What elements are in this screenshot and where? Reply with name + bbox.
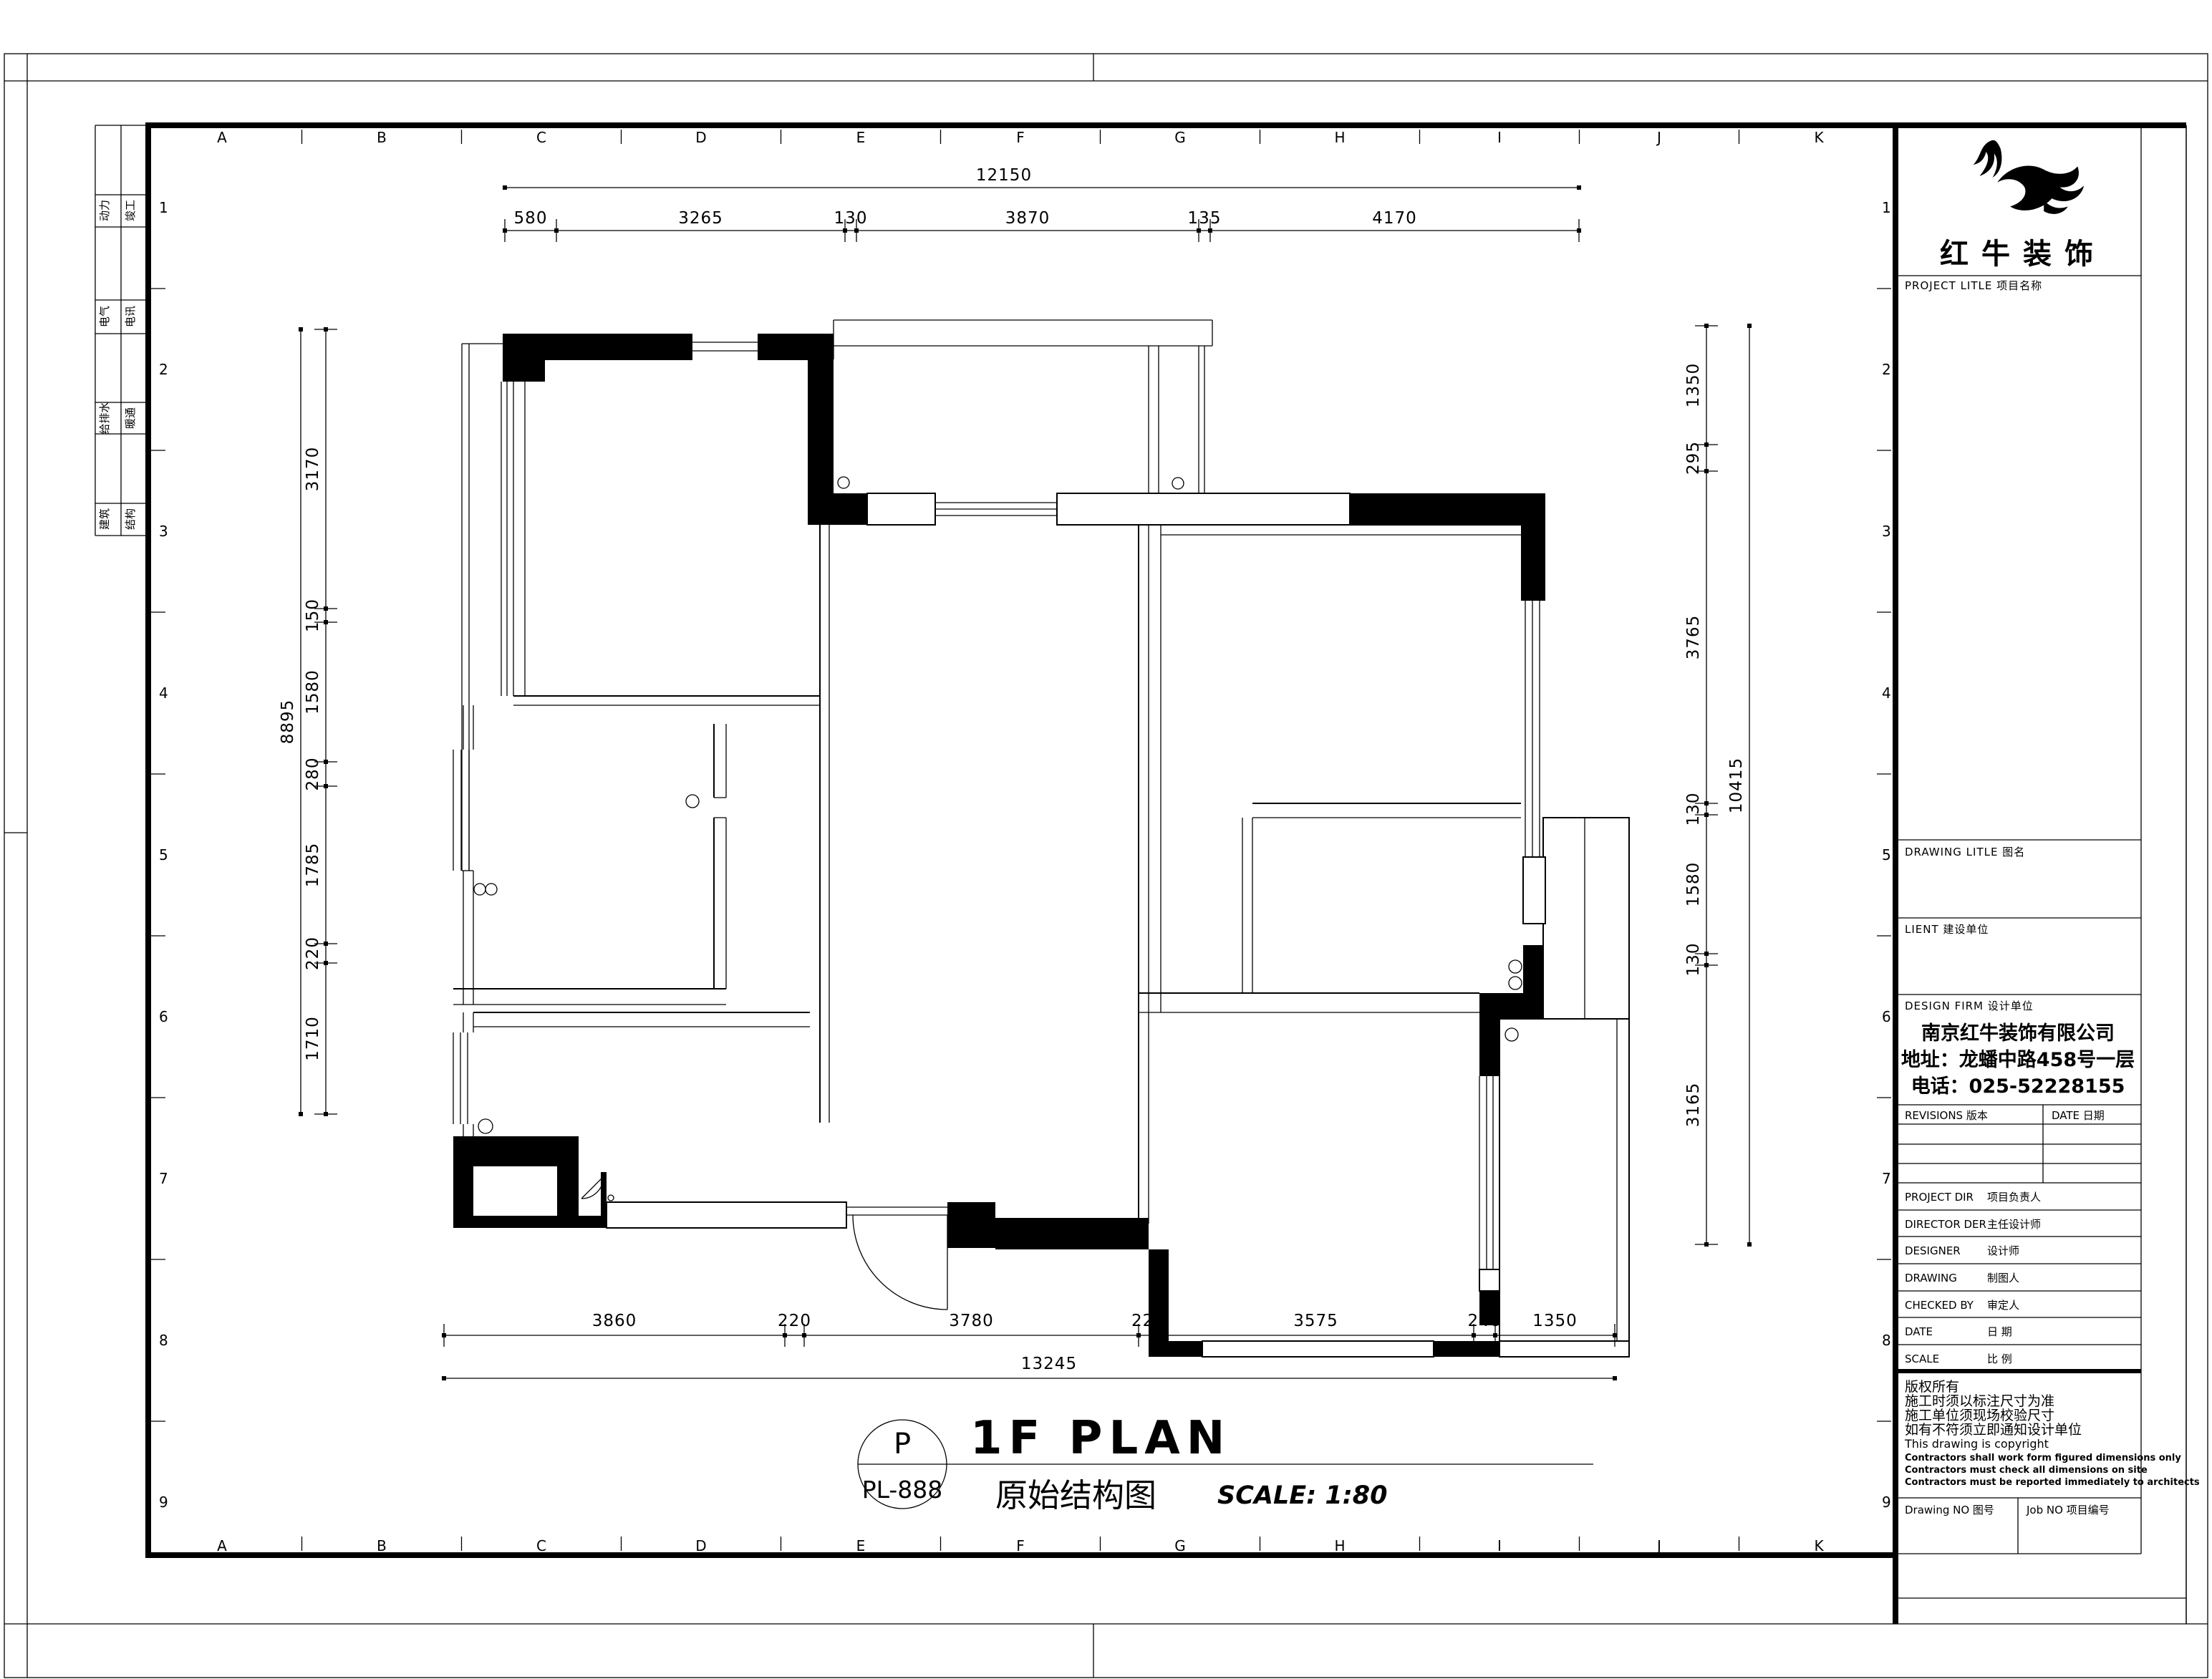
- grid-letter-bottom: E: [856, 1537, 866, 1554]
- grid-number-left: 4: [159, 684, 168, 702]
- dim-total-right: 10415: [1727, 758, 1746, 813]
- tb-row-en: DESIGNER: [1905, 1244, 1961, 1257]
- grid-letter-top: J: [1656, 129, 1661, 146]
- project-title-label: PROJECT LITLE 项目名称: [1905, 279, 2042, 292]
- plan-scale: SCALE: 1:80: [1217, 1481, 1387, 1510]
- plan-title-cn: 原始结构图: [995, 1476, 1156, 1514]
- copyright-line: Contractors shall work form figured dime…: [1905, 1453, 2181, 1463]
- drawing-sheet: 动力竣工电气电讯给排水暖通建筑结构 AABBCCDDEEFFGGHHIIJJKK…: [0, 0, 2212, 1679]
- grid-references: AABBCCDDEEFFGGHHIIJJKK112233445566778899: [151, 129, 1891, 1554]
- dim-label: 3170: [304, 447, 322, 492]
- dim-label: 220: [304, 937, 322, 970]
- copyright-line: 施工时须以标注尺寸为准: [1905, 1393, 2054, 1409]
- grid-number-right: 9: [1882, 1494, 1891, 1511]
- company-address: 地址：龙蟠中路458号一层: [1901, 1048, 2135, 1071]
- dim-label: 130: [1684, 943, 1703, 977]
- dim-tick: [442, 1376, 446, 1380]
- tb-row-en: DATE: [1905, 1325, 1933, 1338]
- grid-letter-bottom: I: [1497, 1537, 1502, 1554]
- drawing-no-label: Drawing NO 图号: [1905, 1504, 1994, 1516]
- copyright-line: 版权所有: [1905, 1379, 1959, 1395]
- stamp-letter: P: [894, 1428, 911, 1461]
- company-name: 南京红牛装饰有限公司: [1921, 1022, 2115, 1045]
- frame-left: [145, 122, 151, 1558]
- dim-label: 220: [1131, 1312, 1165, 1330]
- dim-label: 1785: [304, 843, 322, 888]
- dim-label: 295: [1684, 441, 1703, 475]
- dim-label: 150: [304, 599, 322, 632]
- grid-letter-bottom: B: [377, 1537, 387, 1554]
- dim-label: 3575: [1293, 1312, 1338, 1330]
- grid-number-right: 6: [1882, 1008, 1891, 1025]
- doors: [581, 1176, 947, 1310]
- grid-letter-top: B: [377, 129, 387, 146]
- titleblock-divider: [1893, 122, 1898, 1624]
- job-no-label: Job NO 项目编号: [2026, 1504, 2110, 1516]
- dim-label: 220: [778, 1312, 811, 1330]
- grid-number-left: 1: [159, 199, 168, 216]
- grid-letter-bottom: C: [536, 1537, 546, 1554]
- dim-tick: [1747, 1242, 1752, 1247]
- grid-number-right: 8: [1882, 1332, 1891, 1349]
- dim-label: 130: [1684, 793, 1703, 826]
- grid-letter-top: G: [1174, 129, 1186, 146]
- dim-label: 280: [304, 758, 322, 791]
- grid-letter-top: K: [1814, 129, 1824, 146]
- dim-label: 1350: [1684, 363, 1703, 408]
- tb-row-cn: 设计师: [1987, 1244, 2019, 1257]
- signoff-right: 结构: [124, 508, 137, 530]
- grid-number-left: 6: [159, 1008, 168, 1025]
- dim-label: 1350: [1532, 1312, 1578, 1330]
- company-phone: 电话：025-52228155: [1911, 1075, 2125, 1098]
- grid-number-left: 3: [159, 523, 168, 540]
- floor-plan: [453, 320, 1629, 1357]
- dim-label: 240: [1468, 1312, 1502, 1330]
- grid-letter-top: H: [1334, 129, 1345, 146]
- dim-tick: [299, 327, 303, 332]
- dim-tick: [503, 185, 507, 190]
- partition-walls: [453, 320, 1617, 1341]
- tb-row-cn: 审定人: [1987, 1299, 2019, 1312]
- signoff-left: 给排水: [98, 402, 111, 434]
- entry-door-swing: [853, 1215, 947, 1310]
- grid-number-left: 9: [159, 1494, 168, 1511]
- dim-label: 3765: [1684, 615, 1703, 660]
- grid-number-right: 4: [1882, 684, 1891, 702]
- drawing-title-area: P PL-888 1F PLAN 原始结构图 SCALE: 1:80: [858, 1412, 1593, 1514]
- dim-label: 3860: [592, 1312, 637, 1330]
- grid-number-right: 3: [1882, 523, 1891, 540]
- tb-row-cn: 日 期: [1987, 1325, 2012, 1338]
- copyright-line: 施工单位须现场校验尺寸: [1905, 1408, 2054, 1423]
- riser-circles: [474, 477, 1522, 1201]
- design-firm-label: DESIGN FIRM 设计单位: [1905, 1000, 2034, 1012]
- grid-letter-bottom: D: [695, 1537, 706, 1554]
- tb-row-cn: 制图人: [1987, 1272, 2019, 1284]
- dim-label: 4170: [1372, 209, 1417, 228]
- brand-name: 红牛装饰: [1940, 238, 2106, 271]
- grid-letter-bottom: A: [217, 1537, 227, 1554]
- plan-title: 1F PLAN: [970, 1412, 1231, 1465]
- grid-letter-top: I: [1497, 129, 1502, 146]
- revisions-label: REVISIONS 版本: [1905, 1109, 1988, 1122]
- dim-label: 1580: [304, 669, 322, 715]
- signoff-left: 电气: [98, 306, 111, 327]
- copyright-line: Contractors must check all dimensions on…: [1905, 1465, 2148, 1476]
- grid-number-right: 5: [1882, 846, 1891, 863]
- signoff-right: 电讯: [124, 306, 137, 327]
- grid-number-left: 5: [159, 846, 168, 863]
- grid-number-left: 7: [159, 1170, 168, 1187]
- grid-number-right: 1: [1882, 199, 1891, 216]
- grid-letter-bottom: G: [1174, 1537, 1186, 1554]
- grid-letter-bottom: F: [1016, 1537, 1025, 1554]
- stamp-code: PL-888: [862, 1476, 943, 1504]
- signoff-right: 暖通: [124, 407, 137, 429]
- grid-letter-top: C: [536, 129, 546, 146]
- dim-label: 580: [514, 209, 548, 228]
- title-block: 红牛装饰 PROJECT LITLE 项目名称 DRAWING LITLE 图名…: [1898, 125, 2200, 1624]
- dim-label: 3780: [949, 1312, 994, 1330]
- grid-letter-top: E: [856, 129, 866, 146]
- dim-total-left: 8895: [279, 700, 297, 745]
- grid-letter-top: F: [1016, 129, 1025, 146]
- dim-total-top: 12150: [976, 166, 1032, 185]
- grid-letter-top: A: [217, 129, 227, 146]
- signoff-left: 建筑: [98, 508, 111, 530]
- dim-label: 130: [834, 209, 868, 228]
- grid-number-left: 2: [159, 361, 168, 378]
- dim-label: 3870: [1005, 209, 1051, 228]
- tb-row-en: CHECKED BY: [1905, 1299, 1974, 1312]
- title-block-rows: PROJECT DIR项目负责人DIRECTOR DER主任设计师DESIGNE…: [1905, 1191, 2041, 1365]
- date-col-label: DATE 日期: [2052, 1109, 2105, 1122]
- copyright-block: 版权所有施工时须以标注尺寸为准施工单位须现场校验尺寸如有不符须立即通知设计单位T…: [1904, 1379, 2200, 1488]
- grid-number-left: 8: [159, 1332, 168, 1349]
- grid-letter-bottom: H: [1334, 1537, 1345, 1554]
- copyright-line: Contractors must be reported immediately…: [1905, 1477, 2200, 1488]
- grid-number-right: 2: [1882, 361, 1891, 378]
- copyright-line: This drawing is copyright: [1904, 1437, 2049, 1451]
- tb-row-en: DRAWING: [1905, 1272, 1957, 1284]
- grid-letter-bottom: J: [1656, 1537, 1661, 1554]
- dim-label: 1580: [1684, 862, 1703, 907]
- dim-label: 135: [1188, 209, 1222, 228]
- brand-logo-icon: [1974, 140, 2085, 214]
- client-label: LIENT 建设单位: [1905, 923, 1989, 936]
- tb-row-cn: 主任设计师: [1987, 1218, 2041, 1231]
- tb-row-en: PROJECT DIR: [1905, 1191, 1974, 1204]
- grid-number-right: 7: [1882, 1170, 1891, 1187]
- drawing-title-label: DRAWING LITLE 图名: [1905, 846, 2025, 858]
- tb-row-en: DIRECTOR DER: [1905, 1218, 1986, 1231]
- frame-top: [145, 122, 2186, 128]
- tb-thick-rule: [1898, 1369, 2141, 1373]
- dim-tick: [299, 1112, 303, 1116]
- signoff-right: 竣工: [124, 200, 137, 221]
- dim-label: 1710: [304, 1016, 322, 1061]
- dim-total-bottom: 13245: [1021, 1355, 1077, 1373]
- dim-label: 3265: [678, 209, 723, 228]
- tb-row-cn: 比 例: [1987, 1353, 2012, 1365]
- tb-row-cn: 项目负责人: [1987, 1191, 2041, 1204]
- dim-tick: [1613, 1376, 1617, 1380]
- grid-letter-bottom: K: [1814, 1537, 1824, 1554]
- grid-letter-top: D: [695, 129, 706, 146]
- copyright-line: 如有不符须立即通知设计单位: [1905, 1422, 2082, 1438]
- dim-tick: [1577, 185, 1581, 190]
- signoff-strip: 动力竣工电气电讯给排水暖通建筑结构: [95, 125, 147, 536]
- dim-label: 3165: [1684, 1083, 1703, 1128]
- signoff-left: 动力: [98, 200, 111, 221]
- dim-tick: [1747, 324, 1752, 328]
- tb-row-en: SCALE: [1905, 1353, 1939, 1365]
